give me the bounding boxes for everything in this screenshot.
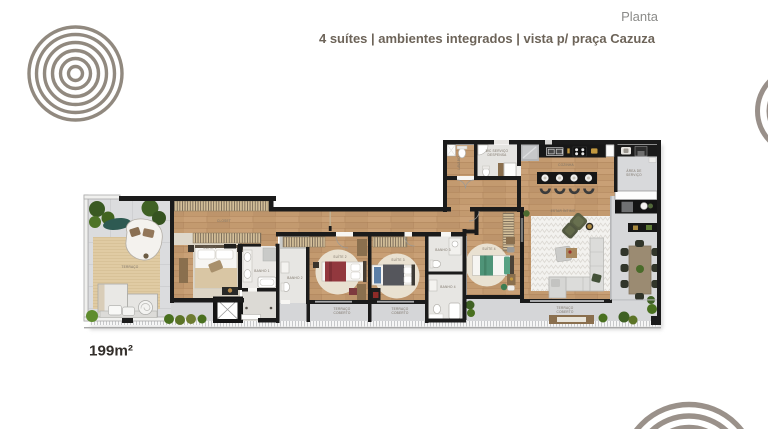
svg-text:COBERTO: COBERTO xyxy=(391,311,408,315)
svg-text:SUÍTE 1: SUÍTE 1 xyxy=(203,246,216,250)
svg-text:Planta: Planta xyxy=(621,9,659,24)
svg-text:TERRAÇO: TERRAÇO xyxy=(122,265,139,269)
svg-text:SUÍTE 4: SUÍTE 4 xyxy=(482,247,495,251)
svg-text:SERVIÇO: SERVIÇO xyxy=(626,173,642,177)
svg-text:LAVABO: LAVABO xyxy=(457,156,461,170)
svg-text:BANHO 3: BANHO 3 xyxy=(435,248,450,252)
svg-text:DESPENSA: DESPENSA xyxy=(488,153,508,157)
svg-text:CLOSET: CLOSET xyxy=(217,219,231,223)
svg-text:SUÍTE 3: SUÍTE 3 xyxy=(391,258,404,262)
svg-text:199m²: 199m² xyxy=(89,343,133,360)
svg-text:COBERTO: COBERTO xyxy=(556,310,573,314)
svg-text:ESTAR ÍNTIMO: ESTAR ÍNTIMO xyxy=(551,209,576,213)
svg-text:BANHO 2: BANHO 2 xyxy=(287,276,302,280)
svg-text:COBERTO: COBERTO xyxy=(333,311,350,315)
svg-text:BANHO 1: BANHO 1 xyxy=(254,269,269,273)
svg-text:SUÍTE 2: SUÍTE 2 xyxy=(333,255,346,259)
svg-text:4 suítes | ambientes integrado: 4 suítes | ambientes integrados | vista … xyxy=(319,31,656,46)
svg-text:COZINHA: COZINHA xyxy=(558,163,574,167)
svg-text:BANHO 4: BANHO 4 xyxy=(440,285,455,289)
